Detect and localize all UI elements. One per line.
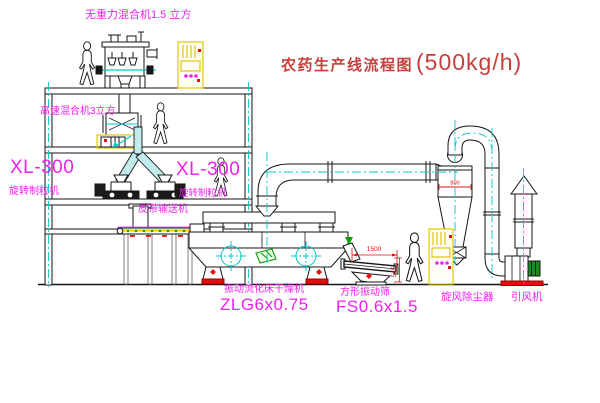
- label-screen-model: FS0.6x1.5: [336, 298, 418, 315]
- label-belt-conveyor: 皮带输送机: [138, 205, 188, 215]
- vibrating-screen: [341, 237, 398, 285]
- control-cabinet-2: [429, 229, 453, 284]
- exhaust-stack: [511, 176, 537, 257]
- gravity-free-mixer: [96, 32, 157, 88]
- person-figure: [80, 42, 95, 85]
- diagram-title: 农药生产线流程图 (500kg/h): [281, 49, 522, 76]
- label-high-speed-mixer: 高速混合机3立方: [40, 107, 116, 117]
- dim-screen-height: 545: [391, 266, 398, 277]
- label-gravity-mixer: 无重力混合机1.5 立方: [85, 10, 191, 21]
- person-figure: [153, 103, 167, 144]
- feed-chute-upper: [119, 94, 130, 113]
- control-cabinet-1: [178, 42, 203, 88]
- label-granulator-left-model: XL-300: [10, 158, 74, 177]
- exhaust-duct: [256, 161, 452, 216]
- downcomer-duct: [483, 168, 508, 276]
- dim-screen-length: 1500: [367, 246, 382, 253]
- label-granulator-left-name: 旋转制粒机: [9, 187, 59, 197]
- fluid-bed-dryer: [189, 212, 348, 284]
- induced-draft-fan: [501, 256, 543, 286]
- label-granulator-center-name: 旋转制粒机: [179, 189, 227, 199]
- process-flow-diagram: 1500 545 800 农药生产线流程图 (500kg/h) 无重力混合机1.…: [0, 0, 600, 403]
- title-capacity: (500kg/h): [416, 49, 522, 76]
- label-dryer-name: 振动流化床干燥机: [224, 285, 304, 295]
- title-text: 农药生产线流程图: [281, 54, 413, 75]
- label-dryer-model: ZLG6x0.75: [220, 296, 309, 313]
- belt-conveyor: [117, 227, 197, 284]
- label-cyclone: 旋风除尘器: [441, 292, 494, 303]
- label-fan: 引风机: [511, 292, 543, 303]
- person-figure: [406, 233, 423, 281]
- label-granulator-center-model: XL-300: [176, 160, 240, 179]
- rotary-granulators: [95, 175, 185, 199]
